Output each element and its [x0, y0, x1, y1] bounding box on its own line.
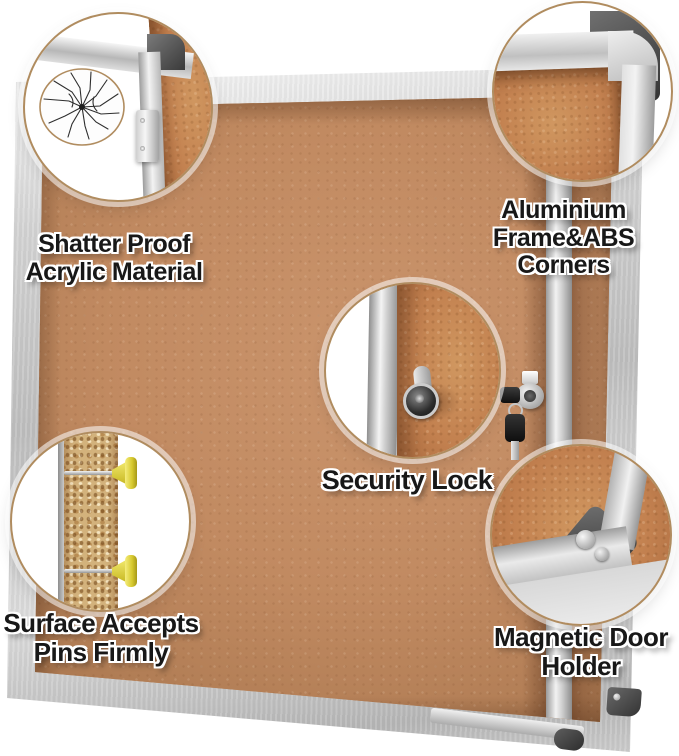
- magnet-dot-icon: [576, 530, 595, 549]
- label-line: Shatter Proof: [0, 231, 228, 259]
- screw-icon: [140, 146, 145, 151]
- frame-side-bar: [618, 64, 657, 182]
- label-magnetic-holder: Magnetic Door Holder: [472, 623, 679, 680]
- keyhole-icon: [415, 394, 424, 403]
- callout-security-lock: [324, 282, 501, 459]
- callout-aluminium-corner: [492, 1, 673, 182]
- cork-detail: [397, 282, 501, 459]
- hinge-icon: [136, 110, 159, 162]
- label-security-lock: Security Lock: [302, 466, 512, 496]
- key-icon: [505, 414, 525, 442]
- callout-magnetic-holder: [490, 444, 672, 626]
- push-pin-icon: [56, 555, 152, 587]
- pin-cap: [125, 555, 137, 587]
- door-bottom-end-cap: [553, 727, 585, 751]
- pin-needle: [64, 569, 114, 573]
- key-icon: [500, 387, 520, 403]
- pin-cap: [125, 457, 137, 489]
- label-line: Acrylic Material: [0, 259, 228, 287]
- screw-icon: [140, 118, 145, 123]
- label-line: Holder: [472, 652, 679, 681]
- magnet-dot-icon: [613, 693, 620, 700]
- label-line: Pins Firmly: [0, 638, 202, 667]
- product-image: Shatter Proof Acrylic Material Aluminium…: [0, 0, 679, 756]
- callout-pin-surface: [10, 431, 191, 612]
- callout-shatter-proof: [23, 12, 213, 202]
- label-shatter-proof: Shatter Proof Acrylic Material: [0, 231, 228, 286]
- label-line: Aluminium: [448, 197, 679, 225]
- magnet-dot-icon: [595, 547, 609, 561]
- label-line: Surface Accepts: [0, 609, 202, 638]
- label-pin-surface: Surface Accepts Pins Firmly: [0, 609, 202, 666]
- label-line: Security Lock: [302, 466, 512, 496]
- pin-neck: [112, 560, 126, 582]
- keyhole-icon: [524, 390, 536, 402]
- pin-neck: [112, 462, 126, 484]
- push-pin-icon: [56, 457, 152, 489]
- label-line: Magnetic Door: [472, 623, 679, 652]
- pin-needle: [64, 471, 114, 475]
- shatter-crack-icon: [38, 66, 126, 148]
- label-aluminium-frame: Aluminium Frame&ABS Corners: [448, 197, 679, 280]
- abs-corner-bottom-right: [606, 687, 642, 717]
- door-edge-rail-detail: [366, 282, 399, 459]
- label-line: Frame&ABS Corners: [448, 225, 679, 280]
